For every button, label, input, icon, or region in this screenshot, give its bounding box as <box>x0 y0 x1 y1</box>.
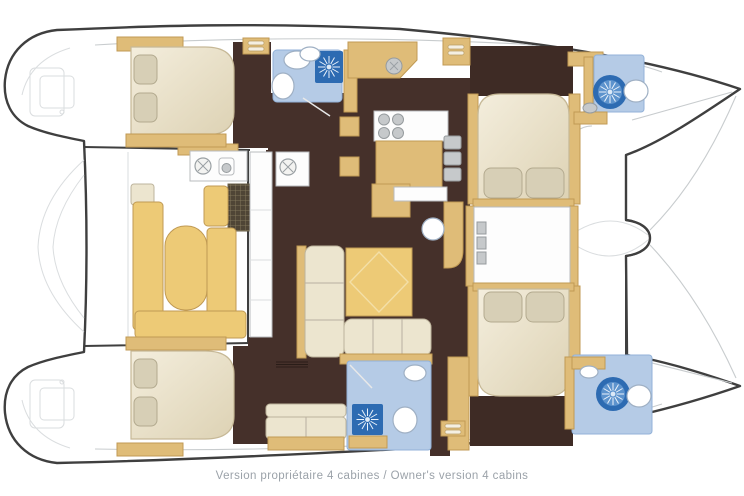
saloon-counter <box>394 187 447 201</box>
nav-station <box>276 152 309 186</box>
catamaran-floor-plan <box>0 0 744 496</box>
toilet-icon <box>393 407 417 433</box>
galley-cabinet <box>340 117 359 136</box>
floor-plan-canvas: Version propriétaire 4 cabines / Owner's… <box>0 0 744 496</box>
hatch-icon <box>243 38 269 54</box>
pillow <box>484 168 522 198</box>
starboard-forward-head <box>565 355 652 434</box>
bed-rail <box>468 94 478 204</box>
pillow <box>134 359 157 388</box>
sink-icon <box>580 366 598 378</box>
toilet-icon <box>624 80 648 102</box>
burner-icon <box>379 114 390 125</box>
stool <box>422 218 444 240</box>
shower-icon <box>352 404 383 435</box>
cockpit-chair <box>228 184 253 231</box>
hatch-icon <box>441 421 465 436</box>
sofa-base <box>268 437 344 450</box>
galley-sink-icon <box>386 58 402 74</box>
bathroom-step <box>349 436 387 448</box>
plan-caption: Version propriétaire 4 cabines / Owner's… <box>0 470 744 482</box>
pillow <box>484 292 522 322</box>
galley-island <box>376 141 442 188</box>
companionway-steps <box>444 136 461 181</box>
galley-cabinet <box>340 157 359 176</box>
cockpit-light-icon <box>195 158 211 174</box>
starboard-aft-cabin <box>117 337 234 456</box>
cabin-locker <box>126 134 226 147</box>
shower-icon <box>596 377 630 411</box>
burner-icon <box>393 128 404 139</box>
hatch-icon <box>443 38 470 65</box>
shower-icon <box>593 75 627 109</box>
cockpit-bench-upper <box>204 186 228 226</box>
cockpit-wet-bar <box>190 151 247 181</box>
burner-icon <box>393 114 404 125</box>
pillow <box>134 55 157 84</box>
sink-icon <box>404 365 426 381</box>
bed-rail <box>569 94 580 204</box>
pillow <box>134 397 157 426</box>
shower-seat <box>300 47 320 61</box>
saloon-table <box>346 248 412 316</box>
cabin-shelf <box>117 443 183 456</box>
stove <box>374 111 448 141</box>
nav-light-icon <box>280 159 296 175</box>
davit-lines <box>38 160 84 332</box>
bed-headboard <box>473 199 574 207</box>
toilet-icon <box>272 73 294 99</box>
cabin-locker <box>126 337 226 350</box>
cabin-sofa <box>266 404 346 450</box>
pillow <box>526 168 564 198</box>
cockpit-bench-aft <box>135 311 246 338</box>
burner-icon <box>379 128 390 139</box>
forward-cabins-landing <box>466 206 578 286</box>
saloon-sideboard <box>250 152 272 337</box>
starboard-forward-cabin <box>468 283 580 396</box>
sink-icon <box>583 103 597 113</box>
toilet-icon <box>627 385 651 407</box>
vanity-desk <box>444 202 463 268</box>
vanity-shelf <box>574 112 607 124</box>
pillow <box>526 292 564 322</box>
cockpit-table <box>165 226 207 310</box>
pillow <box>134 93 157 122</box>
forward-crossbeam <box>626 155 650 355</box>
